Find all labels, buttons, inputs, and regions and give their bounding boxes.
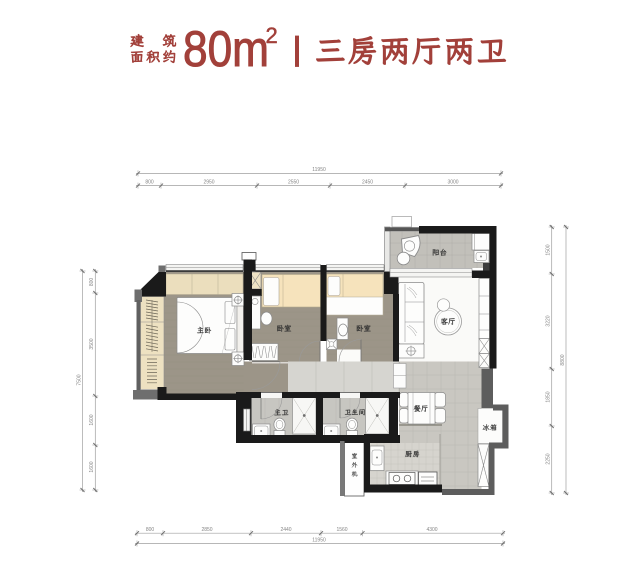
svg-text:11950: 11950: [312, 167, 326, 173]
svg-text:800: 800: [145, 179, 154, 185]
svg-text:3220: 3220: [546, 315, 552, 326]
svg-text:800: 800: [146, 527, 155, 533]
svg-text:3000: 3000: [447, 179, 458, 185]
svg-text:1500: 1500: [546, 244, 552, 255]
svg-text:1600: 1600: [89, 414, 95, 425]
svg-text:1850: 1850: [546, 391, 552, 402]
svg-text:80m: 80m: [183, 21, 269, 77]
svg-text:3500: 3500: [89, 338, 95, 349]
svg-text:2250: 2250: [546, 453, 552, 464]
svg-text:1560: 1560: [336, 527, 347, 533]
svg-text:11950: 11950: [312, 537, 326, 543]
svg-text:2450: 2450: [362, 179, 373, 185]
svg-text:2: 2: [266, 23, 278, 48]
svg-text:2950: 2950: [203, 179, 214, 185]
svg-text:2850: 2850: [201, 527, 212, 533]
svg-text:1600: 1600: [89, 461, 95, 472]
svg-text:2550: 2550: [288, 179, 299, 185]
svg-text:8800: 8800: [560, 354, 566, 365]
svg-text:800: 800: [89, 278, 95, 287]
svg-text:2440: 2440: [280, 527, 291, 533]
svg-text:4300: 4300: [426, 527, 437, 533]
svg-text:7500: 7500: [76, 374, 82, 385]
